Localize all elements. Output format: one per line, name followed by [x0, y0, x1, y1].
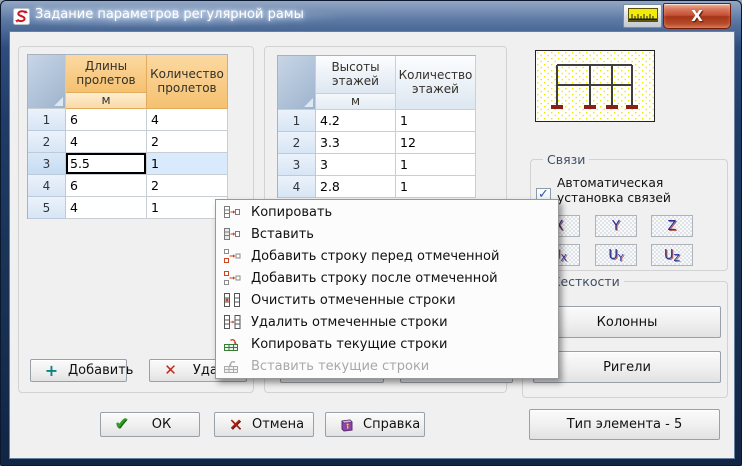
ruler-icon-button[interactable] — [623, 4, 662, 28]
column-header-span: Длины пролетов — [66, 55, 147, 93]
link-button-sub-label: Z — [674, 253, 681, 264]
close-icon: X — [691, 9, 703, 24]
floor-value-cell[interactable]: 3 — [316, 154, 396, 176]
element-type-button[interactable]: Тип элемента - 5 — [529, 409, 720, 440]
span-add-button[interactable]: + Добавить — [30, 359, 127, 382]
menu-item-3[interactable]: Добавить строку перед отмеченной — [216, 245, 558, 267]
row-number-cell[interactable]: 4 — [28, 175, 66, 197]
span-value-cell[interactable]: 4 — [66, 131, 147, 153]
plus-icon: + — [43, 362, 60, 379]
red-x-icon: ✕ — [162, 362, 179, 379]
floor-count-cell[interactable]: 1 — [396, 176, 476, 198]
floor-count-cell[interactable]: 1 — [396, 110, 476, 132]
titlebar[interactable]: Задание параметров регулярной рамы X — [1, 1, 742, 31]
column-header-floor: Высоты этажей — [316, 56, 396, 94]
span-count-cell[interactable]: 1 — [147, 153, 228, 175]
span-count-cell[interactable]: 2 — [147, 175, 228, 197]
menu-item-label: Вставить — [251, 227, 314, 242]
floor-value-cell[interactable]: 2.8 — [316, 176, 396, 198]
link-button-label: U — [664, 248, 674, 263]
ruler-icon — [628, 7, 658, 26]
menu-item-label: Копировать — [251, 205, 332, 220]
red-x-icon: ✕ — [227, 416, 244, 433]
menu-item-5[interactable]: Очистить отмеченные строки — [216, 289, 558, 311]
copy-current-rows-icon — [223, 336, 241, 352]
row-number-cell[interactable]: 2 — [28, 131, 66, 153]
link-button-label: U — [608, 248, 618, 263]
span-count-cell[interactable]: 2 — [147, 131, 228, 153]
ok-button[interactable]: ✔ ОК — [100, 412, 200, 437]
row-number-cell[interactable]: 1 — [28, 109, 66, 131]
row-number-cell[interactable]: 3 — [278, 154, 316, 176]
row-number-cell[interactable]: 3 — [28, 153, 66, 175]
table-corner-cell[interactable] — [278, 56, 316, 110]
paste-current-rows-icon — [223, 358, 241, 374]
row-number-cell[interactable]: 2 — [278, 132, 316, 154]
insert-row-after-icon — [223, 270, 241, 286]
floor-count-cell[interactable]: 12 — [396, 132, 476, 154]
cancel-button[interactable]: ✕ Отмена — [214, 412, 314, 437]
links-group-label: Связи — [543, 152, 589, 167]
auto-links-label: Автоматическая установка связей — [557, 176, 707, 206]
link-button-label: Y — [612, 219, 620, 234]
help-button[interactable]: Справка — [325, 412, 425, 437]
window-title: Задание параметров регулярной рамы — [35, 7, 304, 22]
column-header-count: Количество этажей — [396, 56, 476, 110]
span-value-cell[interactable]: 6 — [66, 109, 147, 131]
row-number-cell[interactable]: 5 — [28, 197, 66, 219]
green-check-icon: ✔ — [113, 416, 130, 433]
delete-rows-icon — [223, 314, 241, 330]
floor-value-cell[interactable]: 3.3 — [316, 132, 396, 154]
unit-header: м — [66, 93, 147, 109]
dialog-client-area: Длины пролетовмКоличество пролетов164242… — [9, 31, 735, 459]
span-count-cell[interactable]: 4 — [147, 109, 228, 131]
dialog-window: Задание параметров регулярной рамы X — [0, 0, 742, 466]
span-lengths-table: Длины пролетовмКоличество пролетов164242… — [27, 54, 228, 219]
link-button-label: Z — [668, 219, 677, 234]
menu-item-8: Вставить текущие строки — [216, 355, 558, 377]
row-number-cell[interactable]: 1 — [278, 110, 316, 132]
menu-item-2[interactable]: Вставить — [216, 223, 558, 245]
row-number-cell[interactable]: 4 — [278, 176, 316, 198]
menu-item-4[interactable]: Добавить строку после отмеченной — [216, 267, 558, 289]
columns-stiffness-button[interactable]: Колонны — [533, 306, 721, 338]
menu-item-7[interactable]: Копировать текущие строки — [216, 333, 558, 355]
close-button[interactable]: X — [663, 3, 731, 29]
unit-header: м — [316, 94, 396, 110]
links-group: Связи ✓ Автоматическая установка связей … — [530, 159, 728, 271]
link-button-sub-label: X — [561, 253, 568, 264]
menu-item-label: Копировать текущие строки — [251, 337, 448, 352]
beams-stiffness-button[interactable]: Ригели — [533, 351, 721, 383]
span-value-cell[interactable]: 6 — [66, 175, 147, 197]
link-button-uy[interactable]: UY — [595, 244, 637, 266]
floor-heights-table: Высоты этажеймКоличество этажей14.2123.3… — [277, 55, 476, 198]
menu-item-label: Добавить строку перед отмеченной — [251, 249, 499, 264]
insert-row-before-icon — [223, 248, 241, 264]
floor-value-cell[interactable]: 4.2 — [316, 110, 396, 132]
menu-item-1[interactable]: Копировать — [216, 201, 558, 223]
paste-cells-icon — [223, 226, 241, 242]
span-value-cell[interactable]: 4 — [66, 197, 147, 219]
scad-logo-icon — [13, 8, 30, 25]
table-context-menu: КопироватьВставитьДобавить строку перед … — [215, 199, 559, 379]
menu-item-label: Добавить строку после отмеченной — [251, 271, 498, 286]
floor-count-cell[interactable]: 1 — [396, 154, 476, 176]
menu-item-label: Очистить отмеченные строки — [251, 293, 456, 308]
menu-item-label: Вставить текущие строки — [251, 359, 429, 374]
menu-item-label: Удалить отмеченные строки — [251, 315, 448, 330]
column-header-count: Количество пролетов — [147, 55, 228, 109]
clear-rows-icon — [223, 292, 241, 308]
menu-item-6[interactable]: Удалить отмеченные строки — [216, 311, 558, 333]
link-button-uz[interactable]: UZ — [651, 244, 693, 266]
link-button-z[interactable]: Z — [651, 215, 693, 237]
span-value-cell[interactable]: 5.5 — [66, 153, 147, 175]
link-button-sub-label: Y — [618, 253, 624, 264]
table-corner-cell[interactable] — [28, 55, 66, 109]
copy-cells-icon — [223, 204, 241, 220]
help-book-icon — [338, 416, 355, 433]
link-button-y[interactable]: Y — [595, 215, 637, 237]
frame-preview — [535, 50, 655, 122]
